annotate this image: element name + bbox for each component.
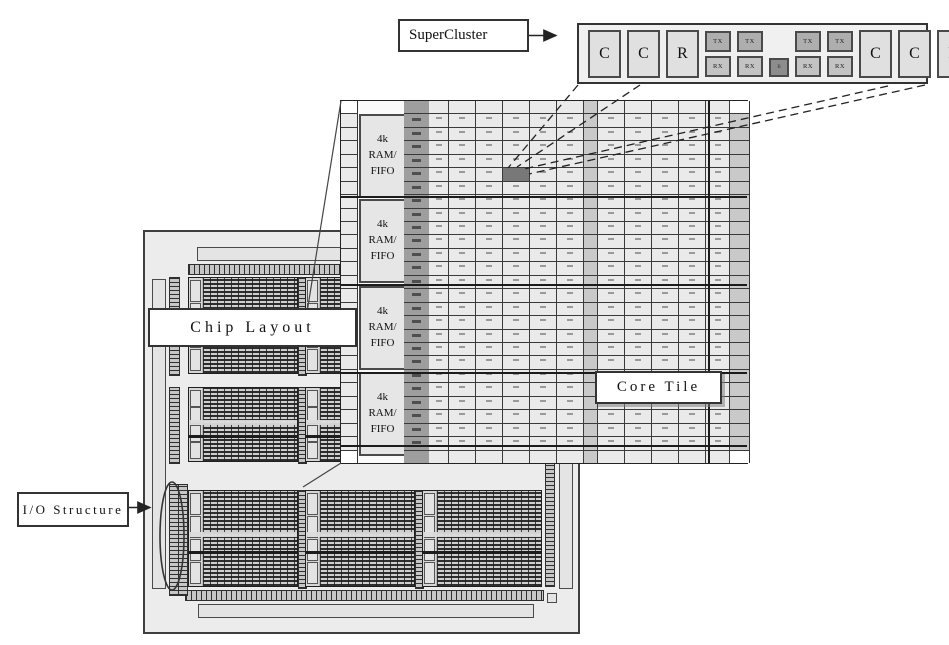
grid-cell: [625, 101, 651, 113]
grid-cell: [584, 128, 597, 140]
chip-tile-ram-block: [190, 390, 201, 407]
grid-cell: [652, 141, 678, 153]
grid-cell: [429, 424, 448, 436]
grid-cell: [429, 289, 448, 301]
chip-tile-ram-block: [307, 280, 318, 302]
highlighted-supercluster-cell: [503, 168, 529, 180]
ram-fifo-block-line: RAM/: [368, 320, 396, 336]
grid-cell: [730, 383, 749, 395]
edge-cell: [341, 397, 357, 409]
grid-cell: [730, 182, 749, 194]
grid-cell: [625, 289, 651, 301]
ram-cell: [404, 289, 429, 301]
grid-cell: [557, 316, 583, 328]
ram-fifo-block-line: FIFO: [371, 164, 395, 180]
grid-cell: [530, 222, 556, 234]
compute-unit-block: C: [898, 30, 931, 78]
grid-cell: [625, 303, 651, 315]
grid-cell: [652, 155, 678, 167]
grid-cell: [557, 276, 583, 288]
chip-tile-ram-column: [423, 491, 436, 586]
grid-cell: [730, 451, 749, 463]
tx-rx-pair: TXRX: [705, 31, 731, 77]
grid-cell: [503, 303, 529, 315]
grid-cell: [476, 356, 502, 368]
grid-cell: [730, 114, 749, 126]
ram-cell: [404, 235, 429, 247]
grid-cell: [449, 437, 475, 449]
grid-cell: [679, 451, 705, 463]
grid-cell: [584, 276, 597, 288]
grid-cell: [476, 209, 502, 221]
grid-cell: [530, 262, 556, 274]
ram-fifo-block-line: FIFO: [371, 249, 395, 265]
grid-cell: [584, 356, 597, 368]
core-tile-grid: 4kRAM/FIFO4kRAM/FIFO4kRAM/FIFO4kRAM/FIFO: [340, 100, 748, 464]
grid-cell: [625, 410, 651, 422]
grid-cell: [476, 343, 502, 355]
ram-cell: [404, 182, 429, 194]
edge-cell: [341, 276, 357, 288]
io-bar-bottom: [198, 604, 534, 618]
grid-cell: [530, 343, 556, 355]
grid-cell: [476, 303, 502, 315]
tile-separator-vertical: [708, 101, 710, 463]
grid-cell: [679, 155, 705, 167]
grid-cell: [429, 262, 448, 274]
grid-cell: [449, 101, 475, 113]
grid-cell: [625, 276, 651, 288]
grid-cell: [598, 303, 624, 315]
grid-cell: [449, 262, 475, 274]
chip-tile-ram-block: [424, 562, 435, 584]
edge-cell: [341, 249, 357, 261]
grid-cell: [730, 209, 749, 221]
grid-cell: [730, 303, 749, 315]
grid-cell: [557, 209, 583, 221]
grid-cell: [584, 330, 597, 342]
ram-cell: [404, 155, 429, 167]
grid-cell: [730, 168, 749, 180]
grid-cell: [503, 222, 529, 234]
grid-cell: [598, 356, 624, 368]
grid-cell: [476, 155, 502, 167]
grid-cell: [598, 222, 624, 234]
ram-cell: [404, 451, 429, 463]
grid-cell: [652, 437, 678, 449]
grid-cell: [598, 424, 624, 436]
grid-cell: [625, 316, 651, 328]
grid-cell: [652, 303, 678, 315]
grid-cell: [625, 343, 651, 355]
ram-cell-column: [404, 101, 430, 463]
grid-cell: [476, 397, 502, 409]
grid-cell: [652, 316, 678, 328]
grid-cell: [679, 101, 705, 113]
rx-block: RX: [737, 56, 763, 77]
grid-cell: [679, 303, 705, 315]
grid-cell: [503, 155, 529, 167]
ram-fifo-block-line: RAM/: [368, 406, 396, 422]
grid-cell: [625, 114, 651, 126]
bridge-block: B: [769, 58, 789, 77]
grid-cell: [598, 437, 624, 449]
grid-cell: [598, 101, 624, 113]
grid-cell: [429, 276, 448, 288]
grid-cell: [625, 235, 651, 247]
grid-cell: [530, 303, 556, 315]
grid-cell: [598, 316, 624, 328]
grid-cell: [730, 343, 749, 355]
grid-cell: [557, 235, 583, 247]
grid-cell: [557, 249, 583, 261]
grid-cell: [679, 222, 705, 234]
ram-cell: [404, 437, 429, 449]
grid-cell: [503, 356, 529, 368]
grid-cell: [503, 262, 529, 274]
grid-cell: [476, 235, 502, 247]
grid-cell: [429, 330, 448, 342]
grid-cell: [557, 451, 583, 463]
grid-cell: [449, 114, 475, 126]
edge-cell: [341, 114, 357, 126]
grid-cell: [429, 155, 448, 167]
ram-cell: [404, 383, 429, 395]
grid-cell: [679, 262, 705, 274]
grid-cell: [429, 182, 448, 194]
grid-cell: [652, 222, 678, 234]
grid-cell: [730, 249, 749, 261]
grid-cell: [625, 262, 651, 274]
grid-cell: [652, 249, 678, 261]
edge-cell: [341, 437, 357, 449]
grid-cell: [598, 410, 624, 422]
ram-cell: [404, 316, 429, 328]
grid-cell: [449, 410, 475, 422]
grid-cell: [679, 128, 705, 140]
io-structure-label-text: I/O Structure: [23, 502, 124, 518]
grid-cell: [652, 114, 678, 126]
grid-cell: [557, 437, 583, 449]
grid-cell: [598, 155, 624, 167]
grid-cell: [530, 330, 556, 342]
grid-cell: [679, 424, 705, 436]
ram-cell: [404, 330, 429, 342]
grid-cell: [530, 397, 556, 409]
grid-cell: [429, 101, 448, 113]
tx-block: TX: [795, 31, 821, 52]
grid-cell: [584, 235, 597, 247]
grid-cell: [530, 155, 556, 167]
grid-cell: [503, 451, 529, 463]
chip-tile-ram-block: [307, 425, 318, 442]
grid-cell: [476, 451, 502, 463]
core-tile-label-text: Core Tile: [617, 379, 700, 396]
grid-cell: [557, 424, 583, 436]
chip-tile-cells: [203, 491, 297, 586]
grid-cell: [557, 356, 583, 368]
grid-cell: [584, 451, 597, 463]
grid-cell: [584, 209, 597, 221]
tx-rx-pair: TXRX: [737, 31, 763, 77]
tx-block: TX: [737, 31, 763, 52]
edge-cell: [341, 262, 357, 274]
chip-tile-dark-band: [423, 551, 541, 554]
grid-cell: [598, 451, 624, 463]
tx-rx-pair: TXRX: [795, 31, 821, 77]
chip-tile-ram-block: [424, 493, 435, 515]
grid-cell: [476, 182, 502, 194]
ram-fifo-column: 4kRAM/FIFO4kRAM/FIFO4kRAM/FIFO4kRAM/FIFO: [357, 101, 406, 463]
chip-tile-light-band: [306, 532, 414, 537]
grid-cell: [503, 276, 529, 288]
ram-cell: [404, 397, 429, 409]
grid-cell: [503, 141, 529, 153]
ram-cell: [404, 168, 429, 180]
grid-cell: [652, 182, 678, 194]
grid-cell: [449, 141, 475, 153]
grid-cell: [730, 235, 749, 247]
grid-cell: [530, 289, 556, 301]
grid-cell: [730, 141, 749, 153]
grid-cell: [557, 168, 583, 180]
grid-cell: [476, 276, 502, 288]
grid-cell: [449, 303, 475, 315]
grid-cell: [652, 410, 678, 422]
grid-cell: [598, 249, 624, 261]
grid-cell: [449, 182, 475, 194]
grid-cell: [557, 289, 583, 301]
ram-cell: [404, 249, 429, 261]
grid-cell: [730, 356, 749, 368]
ram-cell: [404, 410, 429, 422]
ram-fifo-block-line: 4k: [377, 217, 388, 233]
ram-fifo-block-line: RAM/: [368, 233, 396, 249]
grid-cell: [530, 356, 556, 368]
grid-cell: [476, 101, 502, 113]
grid-cell: [429, 209, 448, 221]
grid-cell: [679, 141, 705, 153]
grid-cell: [476, 424, 502, 436]
io-pad-small: [547, 593, 557, 603]
io-cell-strip-horizontal: [185, 590, 544, 601]
edge-cell: [341, 209, 357, 221]
chip-tile-ram-block: [307, 539, 318, 561]
grid-cell: [584, 262, 597, 274]
compute-unit-block: C: [627, 30, 660, 78]
grid-cell: [476, 128, 502, 140]
grid-cell: [449, 397, 475, 409]
grid-cell: [679, 168, 705, 180]
grid-cell: [449, 128, 475, 140]
grid-cell: [530, 383, 556, 395]
grid-cell: [503, 114, 529, 126]
grid-cell: [449, 316, 475, 328]
chip-tile: [305, 490, 415, 587]
grid-cell: [503, 182, 529, 194]
grid-cell: [503, 101, 529, 113]
edge-cell: [341, 168, 357, 180]
grid-cell: [530, 128, 556, 140]
grid-cell: [503, 235, 529, 247]
grid-cell: [429, 397, 448, 409]
ram-unit-block: R: [937, 30, 949, 78]
grid-cell: [584, 141, 597, 153]
grid-cell: [530, 316, 556, 328]
grid-cell: [598, 235, 624, 247]
grid-cell: [557, 343, 583, 355]
grid-cell: [652, 343, 678, 355]
grid-cell: [730, 410, 749, 422]
grid-cell: [625, 128, 651, 140]
tx-block: TX: [827, 31, 853, 52]
grid-cell: [557, 410, 583, 422]
grid-cell: [730, 316, 749, 328]
grid-cell: [679, 316, 705, 328]
chip-tile-cells: [320, 491, 414, 586]
grid-cell: [503, 383, 529, 395]
grid-cell: [449, 222, 475, 234]
grid-cell: [679, 289, 705, 301]
grid-cell: [598, 141, 624, 153]
grid-cell: [530, 101, 556, 113]
grid-cell: [598, 330, 624, 342]
grid-cell: [679, 249, 705, 261]
grid-cell: [476, 262, 502, 274]
chip-tile-ram-block: [190, 425, 201, 442]
grid-cell: [449, 424, 475, 436]
grid-cell: [530, 114, 556, 126]
grid-cell: [652, 235, 678, 247]
ram-fifo-block: 4kRAM/FIFO: [359, 286, 406, 370]
chip-tile-ram-column: [189, 491, 202, 586]
grid-cell: [557, 182, 583, 194]
grid-cell: [557, 303, 583, 315]
grid-cell: [429, 168, 448, 180]
supercluster-label-text: SuperCluster: [409, 27, 487, 44]
supercluster-label: SuperCluster: [398, 19, 529, 52]
grid-cell: [730, 262, 749, 274]
edge-cell: [341, 451, 357, 463]
chip-tile: [188, 387, 298, 462]
tile-separator-horizontal: [341, 445, 747, 447]
grid-cell: [476, 383, 502, 395]
grid-cell: [530, 437, 556, 449]
grid-cell: [679, 209, 705, 221]
grid-cell: [679, 276, 705, 288]
grid-cell: [584, 303, 597, 315]
chip-tile-ram-block: [307, 562, 318, 584]
tx-rx-pair: TXRX: [827, 31, 853, 77]
grid-cell: [429, 343, 448, 355]
chip-tile-ram-block: [190, 442, 201, 459]
chip-tile-ram-block: [307, 390, 318, 407]
grid-cell: [584, 343, 597, 355]
edge-cell: [341, 356, 357, 368]
edge-cell: [341, 222, 357, 234]
grid-cell: [598, 276, 624, 288]
tile-separator-horizontal: [341, 284, 747, 286]
grid-cell: [449, 289, 475, 301]
grid-cell: [449, 451, 475, 463]
grid-cell: [598, 114, 624, 126]
grid-cell: [429, 114, 448, 126]
ram-fifo-block-line: FIFO: [371, 422, 395, 438]
grid-cell: [625, 168, 651, 180]
chip-tile-ram-block: [190, 539, 201, 561]
grid-cell: [652, 451, 678, 463]
grid-cell: [652, 168, 678, 180]
grid-cell: [625, 155, 651, 167]
chip-tile-ram-block: [190, 562, 201, 584]
ram-cell: [404, 343, 429, 355]
supercluster-left-blocks: CCR: [585, 30, 702, 78]
grid-cell: [530, 235, 556, 247]
chip-tile-ram-block: [424, 539, 435, 561]
grid-cell: [476, 168, 502, 180]
chip-tile: [422, 490, 542, 587]
io-cell-strip-vertical: [169, 387, 180, 464]
ram-fifo-block-line: RAM/: [368, 148, 396, 164]
chip-tile-ram-column: [306, 491, 319, 586]
grid-cell: [449, 383, 475, 395]
grid-cell: [449, 235, 475, 247]
grid-cell: [530, 249, 556, 261]
grid-cell: [429, 128, 448, 140]
grid-cell: [530, 168, 556, 180]
grid-cell: [476, 316, 502, 328]
chip-tile-ram-block: [190, 349, 201, 371]
grid-cell: [584, 437, 597, 449]
grid-cell: [476, 141, 502, 153]
edge-cell: [341, 410, 357, 422]
ram-fifo-block: 4kRAM/FIFO: [359, 372, 406, 456]
grid-cell: [557, 155, 583, 167]
grid-cell: [429, 410, 448, 422]
grid-cell: [429, 356, 448, 368]
rx-block: RX: [827, 56, 853, 77]
grid-cell: [584, 101, 597, 113]
edge-cell: [341, 383, 357, 395]
io-structure-label: I/O Structure: [17, 492, 129, 527]
grid-cell: [584, 114, 597, 126]
grid-cell: [503, 249, 529, 261]
ram-cell: [404, 276, 429, 288]
edge-cell: [341, 182, 357, 194]
grid-cell: [503, 437, 529, 449]
grid-cell: [679, 235, 705, 247]
ram-unit-block: R: [666, 30, 699, 78]
grid-cell: [449, 356, 475, 368]
ram-cell: [404, 222, 429, 234]
chip-tile-ram-block: [307, 493, 318, 515]
grid-cell: [679, 410, 705, 422]
chip-tile-light-band: [189, 420, 297, 425]
grid-cell: [449, 249, 475, 261]
grid-cell: [598, 182, 624, 194]
grid-cell: [730, 222, 749, 234]
rx-block: RX: [705, 56, 731, 77]
grid-cell: [730, 155, 749, 167]
supercluster-grid: [429, 101, 750, 463]
chip-tile-dark-band: [189, 435, 297, 438]
io-cell-strip-vertical: [178, 484, 188, 596]
chip-architecture-diagram: 4kRAM/FIFO4kRAM/FIFO4kRAM/FIFO4kRAM/FIFO…: [0, 0, 949, 645]
grid-cell: [730, 276, 749, 288]
grid-cell: [652, 289, 678, 301]
grid-cell: [449, 276, 475, 288]
grid-cell: [449, 209, 475, 221]
